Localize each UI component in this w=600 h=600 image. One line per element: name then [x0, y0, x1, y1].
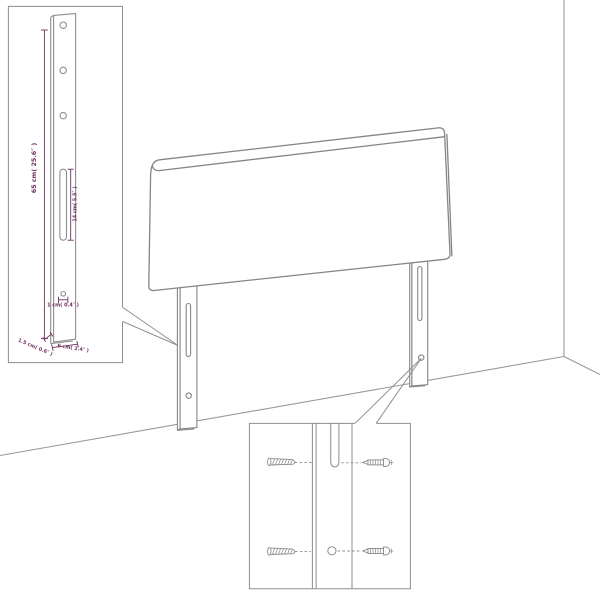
leg-screw-hole: [328, 547, 336, 555]
leg-hole: [60, 112, 66, 118]
leg-hole: [60, 67, 66, 73]
assembly-diagram: 65 cm( 25.6″ ) 14 cm( 5.5″ ) 1 cm( 0.4″ …: [0, 0, 600, 600]
leg-hole: [60, 22, 66, 28]
headboard-right-leg: [410, 249, 428, 387]
headboard-left-leg: [177, 282, 197, 430]
callout-lines: [123, 308, 421, 424]
leg-small-hole: [61, 292, 66, 297]
leg-screw-hole: [186, 393, 191, 398]
leg-dimension-inset: [8, 6, 122, 362]
diagram-line-art: [0, 0, 600, 600]
headboard-panel: [149, 128, 452, 291]
screw-detail-inset: [249, 423, 410, 588]
leg-slot: [60, 169, 67, 240]
leg-screw-hole: [419, 355, 424, 360]
